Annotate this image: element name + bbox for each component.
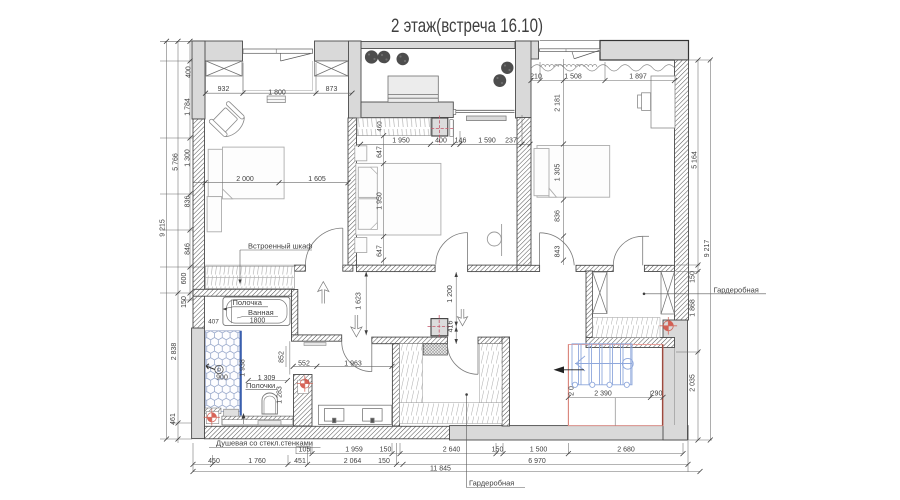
svg-text:1 283: 1 283 [277,386,284,404]
svg-text:150: 150 [378,458,390,465]
svg-text:237: 237 [505,137,517,144]
svg-text:843: 843 [555,246,562,258]
svg-text:1 959: 1 959 [345,447,363,454]
svg-text:Гардеробная: Гардеробная [469,479,514,488]
svg-text:1 760: 1 760 [248,458,266,465]
svg-text:836: 836 [555,210,562,222]
svg-text:210: 210 [530,73,542,80]
svg-text:1 605: 1 605 [308,176,326,183]
svg-text:1 784: 1 784 [185,98,192,116]
svg-text:1 938: 1 938 [240,359,247,377]
svg-text:2 035: 2 035 [690,374,697,392]
svg-text:2 838: 2 838 [171,343,178,361]
svg-text:150: 150 [492,447,504,454]
svg-text:Гардеробная: Гардеробная [714,286,759,295]
svg-text:2 этаж(встреча 16.10): 2 этаж(встреча 16.10) [391,15,543,37]
svg-text:2 0: 2 0 [569,386,576,396]
svg-text:400: 400 [186,66,193,78]
svg-text:2 181: 2 181 [555,94,562,112]
svg-text:290: 290 [651,391,663,398]
svg-text:1 300: 1 300 [185,149,192,167]
svg-text:451: 451 [294,458,306,465]
svg-text:1800: 1800 [250,318,266,325]
svg-text:Полочка: Полочка [233,298,263,307]
svg-text:Полочки: Полочки [246,381,275,390]
svg-text:9 215: 9 215 [160,219,167,237]
svg-text:400: 400 [435,137,447,144]
svg-text:416: 416 [448,321,455,333]
svg-text:150: 150 [181,296,188,308]
svg-text:2 064: 2 064 [344,458,362,465]
svg-text:846: 846 [185,243,192,255]
svg-text:1 305: 1 305 [555,164,562,182]
svg-text:Встроенный шкаф: Встроенный шкаф [248,241,312,250]
svg-text:Душевая со стекл.стенками: Душевая со стекл.стенками [216,439,313,448]
svg-text:146: 146 [455,137,467,144]
svg-text:647: 647 [377,146,384,158]
svg-text:6 970: 6 970 [528,458,546,465]
svg-text:1 897: 1 897 [629,73,647,80]
svg-text:2 000: 2 000 [236,176,254,183]
svg-text:647: 647 [377,245,384,257]
svg-text:1 623: 1 623 [356,292,363,310]
svg-text:600: 600 [181,273,188,285]
svg-text:5 164: 5 164 [692,151,699,169]
svg-text:836: 836 [185,196,192,208]
svg-text:1 800: 1 800 [268,90,286,97]
svg-text:5 766: 5 766 [173,153,180,171]
svg-text:873: 873 [326,86,338,93]
svg-text:450: 450 [208,458,220,465]
svg-text:1 950: 1 950 [392,137,410,144]
svg-text:150: 150 [690,271,697,283]
svg-text:150: 150 [380,447,392,454]
svg-text:9 217: 9 217 [704,240,711,258]
svg-text:2 640: 2 640 [443,447,461,454]
svg-text:900: 900 [216,375,228,382]
svg-text:407: 407 [208,319,219,326]
svg-text:852: 852 [279,351,286,363]
svg-text:1 508: 1 508 [564,73,582,80]
svg-text:2 680: 2 680 [617,447,635,454]
svg-text:460: 460 [377,121,384,132]
svg-text:461: 461 [170,413,177,425]
svg-text:11 845: 11 845 [430,465,451,472]
svg-text:1 950: 1 950 [377,192,384,210]
svg-text:1 868: 1 868 [690,299,697,317]
svg-text:932: 932 [218,86,230,93]
svg-text:1 500: 1 500 [530,447,548,454]
svg-text:Ванная: Ванная [248,308,274,317]
svg-text:2 390: 2 390 [594,391,612,398]
svg-text:1 590: 1 590 [478,137,496,144]
svg-text:1 200: 1 200 [447,285,454,303]
